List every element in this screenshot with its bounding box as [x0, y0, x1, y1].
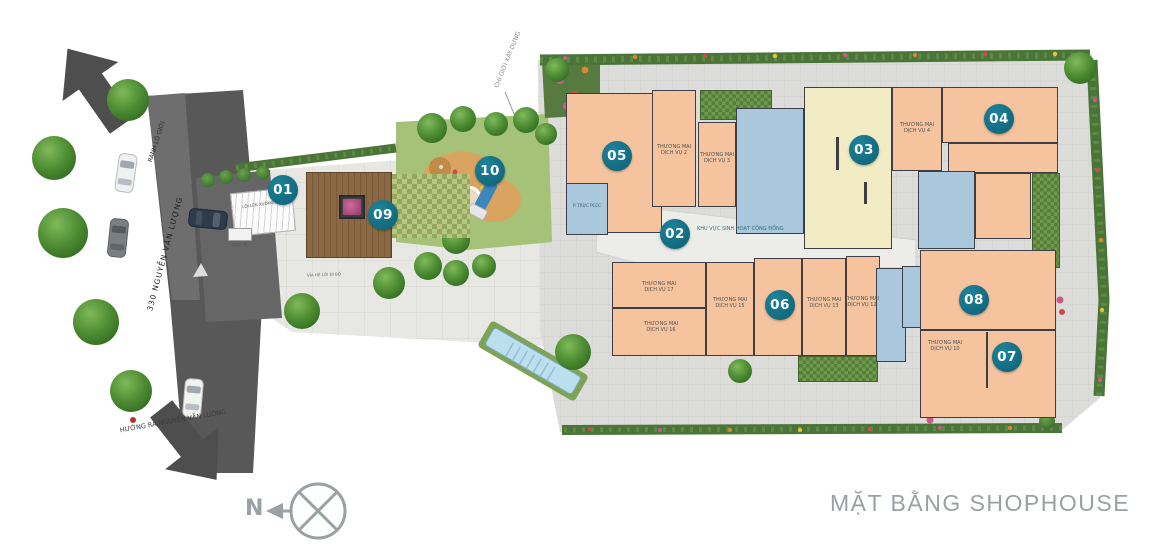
room-core-b — [918, 171, 975, 249]
compass — [266, 484, 345, 538]
marker-04[interactable]: 04 — [984, 104, 1014, 134]
room-shophouse-11 — [920, 250, 1056, 330]
room-fire-duty — [566, 183, 608, 235]
shophouse-site-plan: THƯƠNG MẠIDỊCH VỤ 2 THƯƠNG MẠIDỊCH VỤ 3 … — [0, 0, 1170, 550]
marker-09[interactable]: 09 — [368, 200, 398, 230]
security-booth — [228, 228, 252, 241]
security-label: BẢO VỆ — [222, 242, 258, 247]
marker-05[interactable]: 05 — [602, 141, 632, 171]
room-label: THƯƠNG MẠI — [657, 144, 691, 150]
room-label: THƯƠNG MẠI — [845, 296, 879, 302]
room-core-a — [736, 108, 804, 234]
marker-07[interactable]: 07 — [992, 342, 1022, 372]
room-label: THƯƠNG MẠI — [644, 321, 678, 327]
room-label: THƯƠNG MẠI — [928, 340, 962, 346]
marker-03[interactable]: 03 — [849, 135, 879, 165]
room-label: THƯƠNG MẠI — [807, 297, 841, 303]
community-area-label: KHU VỰC SINH HOẠT CỘNG ĐỒNG — [697, 226, 827, 232]
marker-08[interactable]: 08 — [959, 285, 989, 315]
fire-room-label: P. TRỰC PCCC — [565, 203, 609, 208]
page-title: MẶT BẰNG SHOPHOUSE — [830, 490, 1130, 517]
checker-lawn — [392, 174, 470, 238]
marker-02[interactable]: 02 — [660, 219, 690, 249]
room-shophouse-7 — [975, 173, 1031, 239]
room-label: THƯƠNG MẠI — [900, 122, 934, 128]
marker-10[interactable]: 10 — [475, 156, 505, 186]
marker-06[interactable]: 06 — [765, 290, 795, 320]
deck-planter — [339, 195, 365, 219]
room-label: THƯƠNG MẠI — [642, 281, 676, 287]
trellis-garden-bottom — [798, 356, 878, 382]
room-lobby — [804, 87, 892, 249]
room-label: THƯƠNG MẠI — [713, 297, 747, 303]
room-shophouse-6 — [948, 143, 1058, 173]
room-shophouse-3 — [698, 122, 736, 207]
room-core-d — [902, 266, 922, 328]
compass-north-label: N — [245, 496, 263, 521]
room-label: THƯƠNG MẠI — [700, 152, 734, 158]
marker-01[interactable]: 01 — [268, 175, 298, 205]
